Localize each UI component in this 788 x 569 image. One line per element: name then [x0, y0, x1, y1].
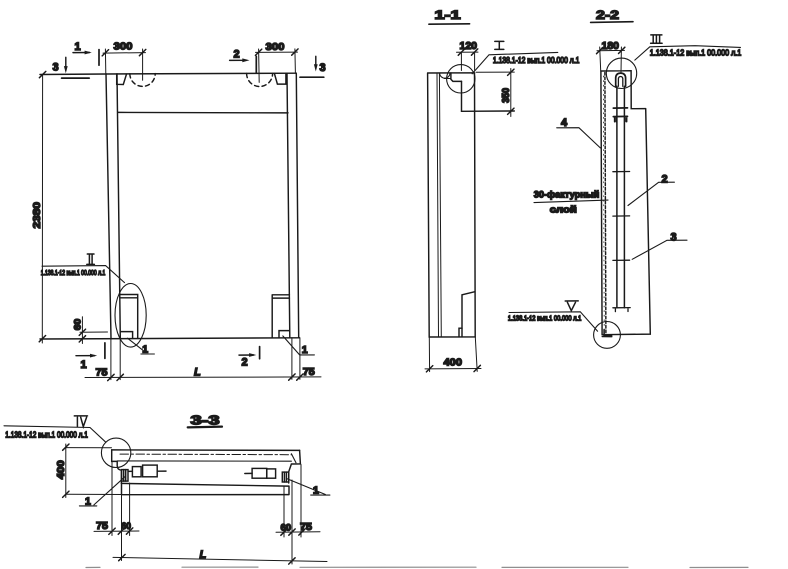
svg-text:1: 1 — [302, 344, 308, 356]
svg-text:1-1: 1-1 — [435, 8, 461, 22]
svg-text:2: 2 — [662, 173, 668, 185]
svg-text:3: 3 — [320, 62, 326, 74]
svg-text:75: 75 — [303, 366, 315, 378]
svg-text:1.138.1-12 вып.1 00.000 л.1: 1.138.1-12 вып.1 00.000 л.1 — [41, 270, 106, 277]
svg-text:350: 350 — [501, 87, 512, 102]
svg-text:1.138.1-12 вып.1 00.000 л.1: 1.138.1-12 вып.1 00.000 л.1 — [493, 56, 580, 65]
svg-text:180: 180 — [602, 40, 620, 52]
svg-text:2: 2 — [242, 357, 248, 369]
svg-text:120: 120 — [460, 41, 478, 52]
svg-text:75: 75 — [300, 521, 312, 533]
svg-text:60: 60 — [122, 521, 132, 532]
svg-text:400: 400 — [444, 357, 463, 369]
svg-text:2380: 2380 — [31, 202, 43, 229]
svg-text:1.138.1-12 вып.1 00.000 л.1: 1.138.1-12 вып.1 00.000 л.1 — [508, 316, 582, 323]
svg-text:1: 1 — [75, 41, 81, 53]
svg-text:60: 60 — [281, 522, 292, 533]
svg-text:L: L — [194, 366, 201, 378]
svg-text:слой: слой — [550, 204, 577, 215]
svg-text:400: 400 — [56, 460, 67, 479]
svg-text:3: 3 — [53, 62, 59, 74]
svg-text:1.138.1-12 вып.1 00.000 л.1: 1.138.1-12 вып.1 00.000 л.1 — [650, 49, 742, 58]
svg-text:1.138.1-12 вып.1 00.000 л.1: 1.138.1-12 вып.1 00.000 л.1 — [5, 430, 88, 439]
svg-text:75: 75 — [96, 520, 108, 532]
svg-text:1: 1 — [81, 359, 87, 371]
svg-text:2: 2 — [234, 49, 240, 61]
svg-text:1: 1 — [142, 344, 148, 356]
svg-text:1: 1 — [85, 495, 91, 507]
svg-text:L: L — [200, 549, 207, 561]
svg-text:3: 3 — [671, 231, 677, 243]
svg-text:60: 60 — [73, 319, 84, 331]
svg-text:30-фактурный: 30-фактурный — [534, 190, 600, 201]
svg-text:75: 75 — [96, 367, 108, 379]
svg-text:300: 300 — [266, 41, 285, 53]
svg-text:3-3: 3-3 — [191, 413, 220, 427]
svg-text:2-2: 2-2 — [596, 8, 619, 22]
svg-text:1: 1 — [313, 485, 319, 497]
svg-text:300: 300 — [114, 41, 133, 53]
